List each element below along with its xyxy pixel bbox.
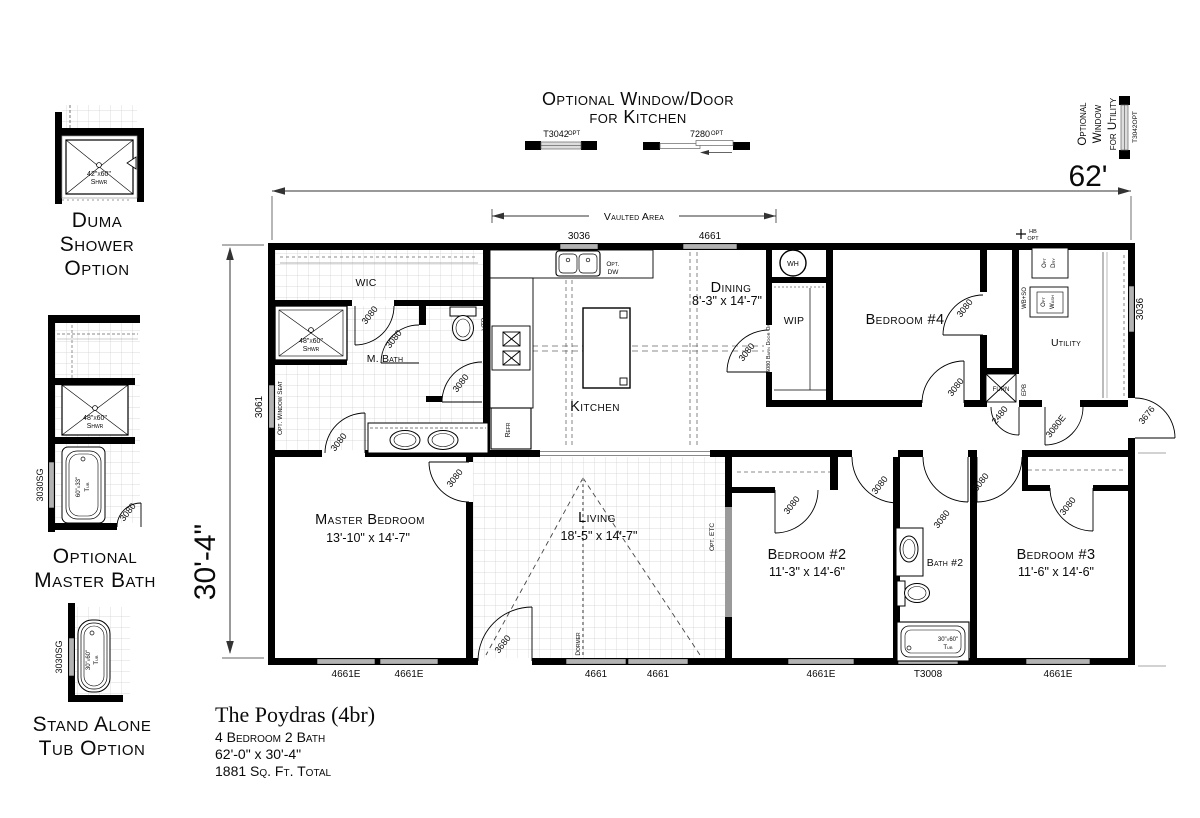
opt-wash-label-2: Wash — [1050, 295, 1056, 309]
spec-beds-baths: 4 Bedroom 2 Bath — [215, 729, 325, 745]
door-label-furnace: 2480 — [990, 404, 1010, 426]
window-label-4661-top: 4661 — [699, 231, 722, 242]
room-master-size: 13'-10" x 14'-7" — [326, 531, 410, 545]
room-master-bath: M. Bath — [367, 353, 403, 365]
opt-dw-label-2: DW — [608, 269, 620, 276]
window-label-4661-2: 4661 — [647, 669, 670, 680]
bath2-tub-size: 30"x60" — [938, 637, 958, 643]
kitchen-option-line2: for Kitchen — [589, 107, 686, 127]
refrigerator-label: Refr — [505, 422, 512, 437]
washer-box-label: WB+SO — [1022, 287, 1028, 309]
window-label-3061-left: 3061 — [254, 395, 265, 418]
master-bath-caption-1: Optional — [53, 545, 138, 568]
room-master-bedroom: Master Bedroom — [315, 512, 425, 528]
opt-dry-label-1: Opt — [1042, 258, 1048, 268]
door-label-dining: 3080 — [737, 341, 757, 363]
door-label-bedroom3-closet: 3080 — [1058, 495, 1078, 517]
window-label-3036-right: 3036 — [1135, 297, 1146, 320]
door-label-utility: 3080E — [1044, 413, 1068, 440]
utility-option-line3: for Utility — [1107, 97, 1119, 150]
room-dining-size: 8'-3" x 14'-7" — [692, 294, 762, 308]
room-bedroom3-size: 11'-6" x 14'-6" — [1018, 565, 1094, 579]
mb-shower-abbr: Shwr — [87, 423, 104, 430]
mate-line-marks — [1138, 453, 1166, 666]
kitchen-option-window-symbol — [525, 141, 597, 150]
furnace-label: FURN — [993, 387, 1010, 393]
window-label-t3008: T3008 — [914, 669, 943, 680]
room-utility: Utility — [1051, 337, 1081, 349]
room-living: Living — [578, 510, 616, 526]
opt-dw-label-1: Opt. — [606, 261, 619, 268]
hose-bib-label-1: HB — [1029, 229, 1037, 235]
mb-tub-abbr: Tub — [85, 482, 91, 492]
sat-tub-abbr: Tub — [94, 655, 100, 665]
door-label-master-bedroom: 3080 — [445, 467, 465, 489]
shower-size-label: 48"x60" — [299, 338, 323, 345]
room-kitchen: Kitchen — [570, 399, 620, 415]
door-label-bedroom4: 3080 — [946, 376, 966, 398]
kitchen-window-label: T3042 — [543, 129, 569, 139]
master-vanity-fixture — [368, 423, 488, 453]
dim-width-label: 62' — [1068, 160, 1107, 193]
master-bath-caption-2: Master Bath — [34, 569, 156, 592]
epb-label: EPB — [1022, 384, 1028, 396]
title-block: The Poydras (4br) 4 Bedroom 2 Bath 62'-0… — [215, 702, 375, 779]
wip-shelving — [774, 288, 826, 390]
window-label-4661e-2: 4661E — [395, 669, 424, 680]
utility-option-window-symbol — [1119, 96, 1130, 159]
room-bedroom4: Bedroom #4 — [866, 312, 945, 328]
room-bath2: Bath #2 — [927, 557, 963, 569]
mb-shower-size: 48"x60" — [83, 415, 107, 422]
sat-window-label: 3030SG — [54, 640, 64, 673]
utility-option-line2: Window — [1092, 104, 1104, 143]
tub-caption-2: Tub Option — [39, 737, 146, 760]
duma-shower-abbr: Shwr — [91, 179, 108, 186]
duma-caption-1: Duma — [72, 209, 123, 232]
kitchen-option-door-symbol — [643, 141, 750, 156]
opt-etc-label: Opt. ETC — [709, 523, 716, 551]
stove-fixture — [492, 326, 530, 370]
window-label-3036-top: 3036 — [568, 231, 591, 242]
door-label-bath2: 3080 — [932, 508, 952, 530]
washer-dryer-fixtures — [1030, 248, 1068, 317]
tub-caption-1: Stand Alone — [33, 713, 152, 736]
dim-depth-label: 30'-4" — [189, 524, 222, 600]
kitchen-option-line1: Optional Window/Door — [542, 89, 734, 109]
hose-bib-label-2: OPT — [1027, 236, 1039, 242]
opt-wash-label-1: Opt — [1041, 297, 1047, 307]
mb-window-label: 3030SG — [35, 468, 45, 501]
room-wic: WIC — [355, 277, 376, 289]
sat-tub-size: 30"x60" — [86, 650, 92, 670]
door-label-bedroom2-closet: 3080 — [782, 494, 802, 516]
floor-plan-drawing: Duma Shower Option 42"x60" Shwr Optional… — [0, 0, 1200, 818]
vaulted-area-label: Vaulted Area — [604, 211, 664, 223]
opt-dry-label-2: Dry — [1051, 258, 1057, 268]
duma-shower-size: 42"x60" — [87, 171, 111, 178]
door-label-bedroom4-side: 3080 — [955, 297, 975, 319]
kitchen-door-suffix: OPT — [711, 131, 724, 137]
model-name: The Poydras (4br) — [215, 702, 375, 727]
barn-door-label: 16080 Barn Door Opt. — [766, 320, 772, 376]
kitchen-island — [583, 308, 630, 388]
vtr-label: VTR — [481, 317, 488, 330]
room-wip: WIP — [784, 315, 804, 327]
floor-plan-sheet: Duma Shower Option 42"x60" Shwr Optional… — [0, 0, 1200, 818]
utility-option-line1: Optional — [1077, 102, 1089, 146]
room-living-size: 18'-5" x 14'-7" — [561, 529, 638, 543]
kitchen-door-label: 7280 — [690, 129, 710, 139]
water-heater-label: WH — [787, 261, 799, 268]
window-label-4661e-3: 4661E — [807, 669, 836, 680]
window-label-4661-1: 4661 — [585, 669, 608, 680]
door-label-utility-ext: 3676 — [1137, 404, 1157, 426]
spec-size: 62'-0" x 30'-4" — [215, 746, 301, 762]
mb-tub-size: 60"x33" — [76, 477, 82, 497]
kitchen-window-suffix: OPT — [568, 131, 581, 137]
window-seat-label: Opt. Window Seat — [277, 381, 284, 435]
dormer-label: Dormer — [575, 632, 582, 656]
utility-option-window-label: T3042OPT — [1132, 111, 1139, 143]
floor-tile-grids — [55, 105, 725, 697]
duma-caption-2: Shower — [60, 233, 135, 256]
window-label-4661e-4: 4661E — [1044, 669, 1073, 680]
room-bedroom2-size: 11'-3" x 14'-6" — [769, 565, 845, 579]
room-bedroom2: Bedroom #2 — [768, 547, 847, 563]
dimension-30ft4 — [222, 245, 264, 658]
hose-bib-icon — [1016, 229, 1026, 239]
room-bedroom3: Bedroom #3 — [1017, 547, 1096, 563]
shower-abbr-label: Shwr — [303, 346, 320, 353]
duma-caption-3: Option — [64, 257, 129, 280]
door-label-bedroom2: 3080 — [870, 474, 890, 496]
spec-area: 1881 Sq. Ft. Total — [215, 763, 331, 779]
bath2-tub-abbr: Tub — [943, 645, 953, 651]
window-label-4661e-1: 4661E — [332, 669, 361, 680]
